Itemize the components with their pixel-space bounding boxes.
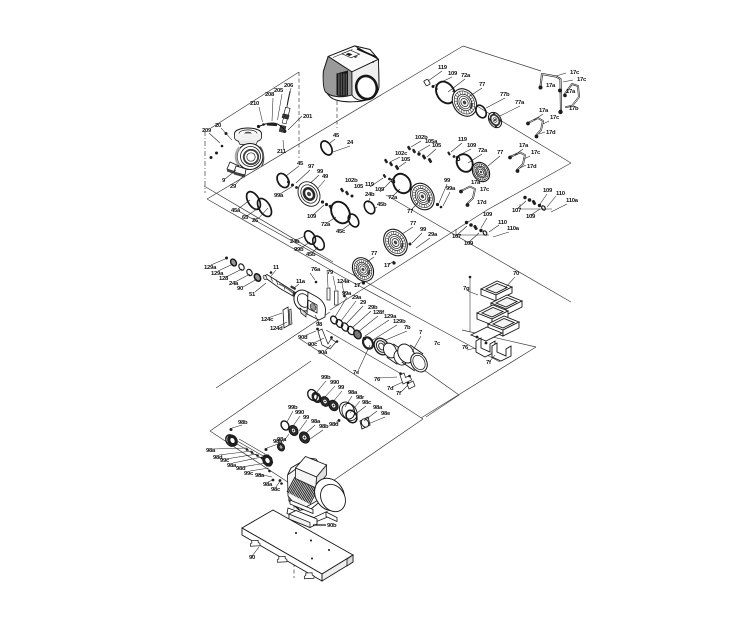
svg-text:97: 97 xyxy=(308,164,315,170)
svg-text:99: 99 xyxy=(303,415,310,421)
svg-text:128: 128 xyxy=(219,276,229,282)
svg-text:90c: 90c xyxy=(308,342,318,348)
svg-text:99a: 99a xyxy=(342,291,352,297)
svg-text:99: 99 xyxy=(338,385,345,391)
svg-text:110: 110 xyxy=(556,191,566,197)
svg-text:49: 49 xyxy=(322,174,329,180)
svg-text:98: 98 xyxy=(316,322,323,328)
svg-text:45b: 45b xyxy=(306,252,316,258)
svg-text:98d: 98d xyxy=(329,422,339,428)
svg-text:77: 77 xyxy=(497,150,504,156)
svg-text:90b: 90b xyxy=(327,523,337,529)
svg-text:79: 79 xyxy=(327,270,334,276)
svg-text:45a: 45a xyxy=(231,208,241,214)
svg-text:7f: 7f xyxy=(396,391,401,397)
svg-text:17a: 17a xyxy=(539,108,549,114)
svg-text:99: 99 xyxy=(444,178,451,184)
svg-text:24b: 24b xyxy=(290,239,300,245)
svg-text:76a: 76a xyxy=(311,267,321,273)
svg-text:77: 77 xyxy=(479,82,486,88)
svg-text:29a: 29a xyxy=(428,232,438,238)
svg-text:77a: 77a xyxy=(515,100,525,106)
svg-text:29: 29 xyxy=(230,184,237,190)
svg-text:7b: 7b xyxy=(404,325,411,331)
svg-text:45c: 45c xyxy=(336,229,346,235)
svg-text:110a: 110a xyxy=(507,226,520,232)
svg-text:99c: 99c xyxy=(244,471,254,477)
svg-text:124d: 124d xyxy=(270,326,283,332)
svg-text:11: 11 xyxy=(273,265,280,271)
svg-text:17: 17 xyxy=(354,283,361,289)
svg-text:109: 109 xyxy=(467,143,477,149)
svg-text:211: 211 xyxy=(277,149,287,155)
svg-text:7c: 7c xyxy=(434,341,441,347)
svg-text:17c: 17c xyxy=(570,70,580,76)
svg-text:109: 109 xyxy=(483,212,493,218)
svg-text:98c: 98c xyxy=(271,487,281,493)
svg-text:77: 77 xyxy=(407,209,414,215)
svg-text:17b: 17b xyxy=(569,106,579,112)
svg-text:99: 99 xyxy=(420,227,427,233)
svg-text:98b: 98b xyxy=(238,420,248,426)
svg-text:45: 45 xyxy=(333,133,340,139)
svg-text:24b: 24b xyxy=(365,192,375,198)
svg-text:124c: 124c xyxy=(261,317,274,323)
svg-text:17d: 17d xyxy=(546,130,556,136)
svg-text:119: 119 xyxy=(438,65,448,71)
svg-text:17c: 17c xyxy=(577,77,587,83)
svg-text:51: 51 xyxy=(249,292,256,298)
svg-text:110a: 110a xyxy=(566,198,579,204)
svg-text:7e: 7e xyxy=(353,370,360,376)
svg-text:90a: 90a xyxy=(318,350,328,356)
svg-text:7: 7 xyxy=(419,330,423,336)
svg-text:72a: 72a xyxy=(461,73,471,79)
svg-text:17a: 17a xyxy=(519,143,529,149)
svg-text:17a: 17a xyxy=(471,180,481,186)
svg-text:65: 65 xyxy=(242,215,249,221)
svg-text:99a: 99a xyxy=(446,186,456,192)
svg-text:98b: 98b xyxy=(319,424,329,430)
svg-text:76: 76 xyxy=(462,345,469,351)
svg-text:128f: 128f xyxy=(373,310,384,316)
svg-text:98e: 98e xyxy=(381,411,391,417)
svg-text:109: 109 xyxy=(543,188,553,194)
svg-text:17d: 17d xyxy=(477,200,487,206)
svg-text:109: 109 xyxy=(307,214,317,220)
svg-text:77: 77 xyxy=(410,221,417,227)
svg-text:109: 109 xyxy=(448,71,458,77)
svg-text:17c: 17c xyxy=(480,187,490,193)
svg-text:205: 205 xyxy=(274,88,284,94)
svg-text:11a: 11a xyxy=(296,279,306,285)
svg-text:7d: 7d xyxy=(387,386,394,392)
svg-text:90d: 90d xyxy=(298,335,308,341)
svg-text:99b: 99b xyxy=(294,247,304,253)
svg-text:105: 105 xyxy=(354,184,364,190)
svg-text:109: 109 xyxy=(375,187,385,193)
svg-text:29: 29 xyxy=(360,300,367,306)
svg-text:124a: 124a xyxy=(337,279,350,285)
svg-text:105: 105 xyxy=(432,143,442,149)
svg-text:70: 70 xyxy=(513,271,520,277)
svg-text:45: 45 xyxy=(297,161,304,167)
svg-text:45b: 45b xyxy=(377,202,387,208)
svg-text:98a: 98a xyxy=(255,473,265,479)
svg-text:17d: 17d xyxy=(527,164,537,170)
svg-text:201: 201 xyxy=(303,114,313,120)
svg-text:17a: 17a xyxy=(566,89,576,95)
svg-text:209: 209 xyxy=(202,128,212,134)
svg-text:77: 77 xyxy=(371,251,378,257)
svg-text:17a: 17a xyxy=(546,83,556,89)
svg-text:206: 206 xyxy=(284,83,294,89)
svg-text:99a: 99a xyxy=(274,193,284,199)
svg-text:72a: 72a xyxy=(321,222,331,228)
svg-text:72a: 72a xyxy=(478,148,488,154)
svg-text:98c: 98c xyxy=(362,400,372,406)
svg-text:77b: 77b xyxy=(500,92,510,98)
svg-text:17c: 17c xyxy=(550,115,560,121)
svg-text:90: 90 xyxy=(249,555,256,561)
svg-text:17c: 17c xyxy=(531,150,541,156)
svg-text:24: 24 xyxy=(347,140,354,146)
svg-text:210: 210 xyxy=(250,101,260,107)
